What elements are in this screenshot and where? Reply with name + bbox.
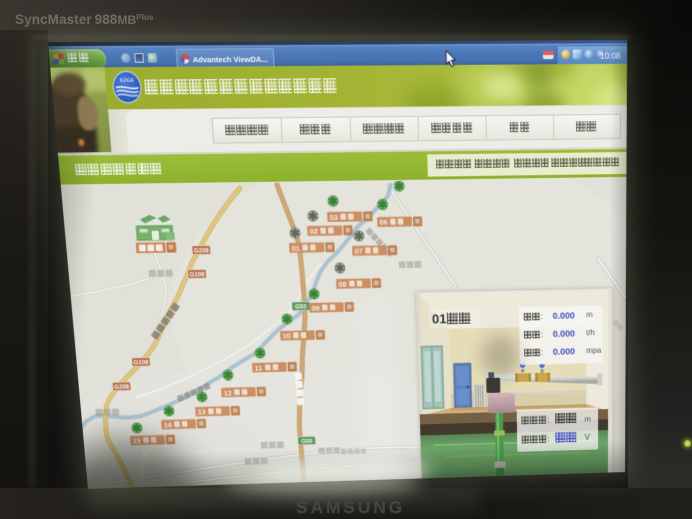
svg-text:10: 10 [282,332,291,340]
svg-text:G55: G55 [295,304,307,311]
svg-text:G208: G208 [194,248,210,255]
svg-text:G208: G208 [114,384,130,391]
svg-text:07: 07 [355,247,364,255]
svg-text:03: 03 [330,213,339,222]
svg-text:13: 13 [197,408,206,416]
svg-text:G55: G55 [301,439,313,445]
svg-text:G108: G108 [133,360,149,367]
svg-text:02: 02 [310,227,319,236]
svg-text:08: 08 [338,280,347,288]
svg-text:G108: G108 [189,272,205,279]
svg-text:XZGS: XZGS [119,78,134,84]
svg-text:06: 06 [379,218,388,227]
svg-text:12: 12 [224,389,233,397]
svg-text:14: 14 [163,421,172,429]
svg-text:11: 11 [254,364,263,372]
svg-text:01: 01 [292,244,301,253]
svg-text:09: 09 [311,304,320,312]
